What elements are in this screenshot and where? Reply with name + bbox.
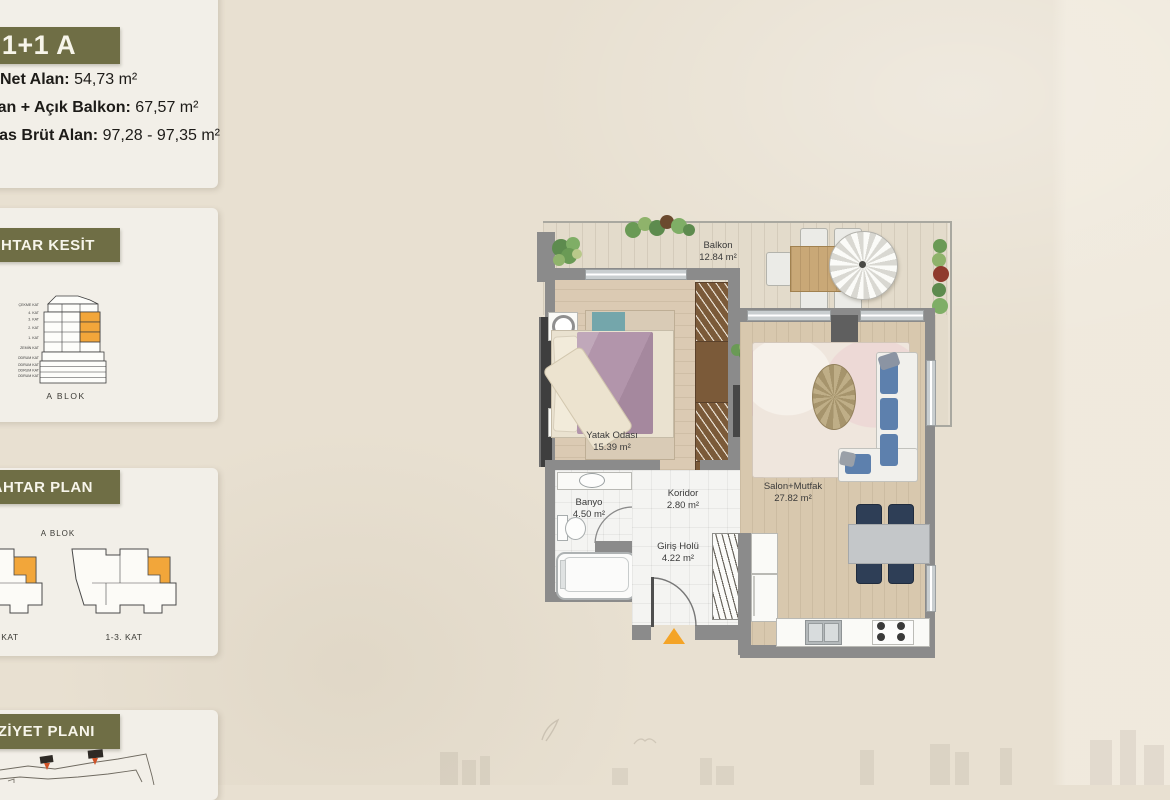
sink-bowl — [824, 623, 839, 642]
gross-area-line: Satışa Esas Brüt Alan: 97,28 - 97,35 m² — [0, 127, 220, 145]
bedroom-balcony-window — [585, 269, 687, 280]
plant-icon — [547, 234, 589, 272]
building-section-diagram: ÇEKME KAT 4. KAT 3. KAT 2. KAT 1. KAT ZE… — [18, 292, 114, 388]
net-area-label: Net Alan: — [0, 71, 70, 88]
floor-label: 3. KAT — [28, 318, 40, 322]
keyplan-floors-label: 1-3. KAT — [84, 632, 164, 642]
floor-label: 2. BODRUM KAT — [18, 363, 40, 367]
floor-plan: Balkon12.84 m² Yatak Odası15.39 m² Salon… — [537, 212, 969, 674]
room-label-banyo: Banyo4.50 m² — [573, 497, 605, 521]
burner-icon — [877, 633, 885, 641]
floor-label: 1. BODRUM KAT — [18, 356, 40, 360]
room-label-giris-holu: Giriş Holü4.22 m² — [657, 541, 699, 565]
dining-table — [848, 524, 930, 564]
unit-type-badge: 1+1 A — [0, 27, 120, 64]
floor-label: ZEMİN KAT — [20, 345, 40, 350]
sofa-pillow — [839, 451, 857, 468]
net-area-line: Net Alan: 54,73 m² — [0, 71, 137, 89]
plant-icon — [927, 238, 953, 318]
chimney-shaft — [831, 315, 858, 345]
parasol-center — [859, 261, 866, 268]
hall-bottom-wall — [632, 625, 651, 640]
bird-doodle-icon — [536, 714, 576, 744]
burner-icon — [897, 633, 905, 641]
unit-type-label: 1+1 A — [2, 30, 76, 61]
keyplan-block-label: A BLOK — [16, 529, 100, 538]
bathtub-ledge — [560, 560, 566, 589]
wardrobe-section — [695, 402, 730, 462]
hall-bottom-wall — [695, 625, 740, 640]
outdoor-chair — [766, 252, 792, 286]
keyplan-floors-1-3 — [62, 545, 182, 631]
bedroom-bottom-wall — [700, 460, 740, 470]
sink-basin — [579, 473, 605, 488]
hall-salon-wall — [738, 533, 751, 655]
bathtub-inner — [563, 557, 629, 592]
floor-label: 1. KAT — [28, 336, 40, 340]
wardrobe-section — [695, 282, 730, 342]
room-label-balkon: Balkon12.84 m² — [699, 240, 737, 264]
net-plus-balcony-value: 67,57 m² — [131, 99, 199, 116]
balcony-railing-top — [543, 221, 952, 223]
net-plus-balcony-line: Net Alan + Açık Balkon: 67,57 m² — [0, 99, 198, 117]
balcony-deck-right — [935, 315, 948, 425]
section-block-label: A BLOK — [20, 391, 112, 401]
keyplan-ground-floor — [0, 545, 48, 631]
key-plan-title: ANAHTAR PLAN — [0, 479, 93, 496]
gross-area-label: Satışa Esas Brüt Alan: — [0, 127, 98, 144]
key-section-title: ANAHTAR KESİT — [0, 237, 95, 254]
bird-doodle-icon — [632, 734, 658, 748]
salon-window — [747, 310, 831, 321]
balcony-railing-return — [935, 425, 952, 427]
plant-icon — [623, 212, 695, 242]
salon-window — [860, 310, 924, 321]
brochure-page: { "sidebar": { "unit_badge": "1+1 A", "a… — [0, 0, 1170, 785]
floor-label: 3. BODRUM KAT — [18, 369, 40, 373]
tall-cabinet — [751, 533, 778, 574]
fridge-handle — [753, 576, 755, 616]
page-fold-highlight — [1052, 0, 1170, 785]
salon-right-window — [926, 360, 936, 426]
pouf — [812, 364, 856, 430]
fridge — [751, 574, 778, 622]
burner-icon — [897, 622, 905, 630]
floor-label: 4. BODRUM KAT — [18, 374, 40, 378]
site-plan-title: VAZİYET PLANI — [0, 723, 95, 740]
site-plan-badge: VAZİYET PLANI — [0, 714, 120, 749]
floor-label: 2. KAT — [28, 326, 40, 330]
keyplan-ground-label: ZEMİN KAT — [0, 632, 39, 642]
entrance-marker — [663, 628, 685, 644]
sofa-cushion — [880, 434, 898, 466]
room-label-salon-mutfak: Salon+Mutfak27.82 m² — [764, 481, 822, 505]
salon-right-window — [926, 565, 936, 612]
entrance-door-arc — [652, 576, 698, 628]
net-plus-balcony-label: Net Alan + Açık Balkon: — [0, 99, 131, 116]
sink-bowl — [808, 623, 823, 642]
room-label-yatak-odasi: Yatak Odası15.39 m² — [586, 430, 638, 454]
floor-label: ÇEKME KAT — [18, 303, 39, 307]
burner-icon — [877, 622, 885, 630]
bed-teal-accent — [592, 312, 625, 331]
room-label-koridor: Koridor2.80 m² — [667, 488, 699, 512]
key-plan-badge: ANAHTAR PLAN — [0, 470, 120, 504]
floor-label: 4. KAT — [28, 311, 40, 315]
site-plan-drawing — [0, 748, 210, 785]
gross-area-value: 97,28 - 97,35 m² — [98, 127, 220, 144]
sofa-cushion — [880, 398, 898, 430]
net-area-value: 54,73 m² — [70, 71, 138, 88]
key-section-badge: ANAHTAR KESİT — [0, 228, 120, 262]
